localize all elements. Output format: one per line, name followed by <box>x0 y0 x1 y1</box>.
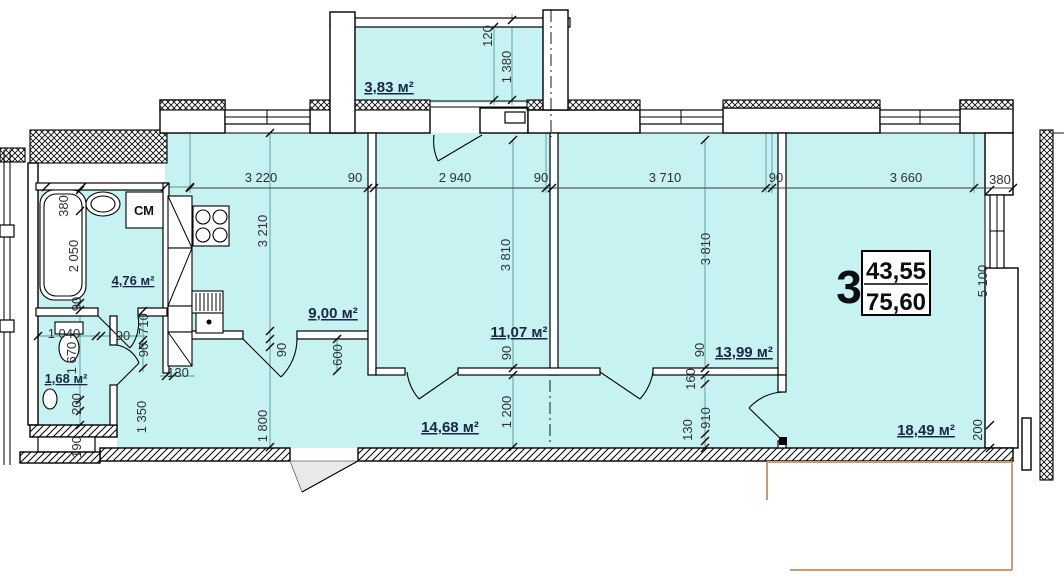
wall-segment <box>310 108 430 133</box>
balcony-pier <box>543 10 568 110</box>
room-area-label-kitchen: 9,00 м² <box>308 305 357 322</box>
washing-machine-label: СМ <box>134 203 154 218</box>
dim-label: 90 <box>534 170 548 185</box>
neighbour-stub <box>0 225 14 237</box>
dim-label: 5 100 <box>975 265 990 298</box>
neighbour-stub <box>0 320 14 332</box>
wall-segment <box>30 130 167 163</box>
unit-number: 3 <box>836 261 862 313</box>
dim-label: 90 <box>348 170 362 185</box>
partition <box>36 308 98 316</box>
dim-label: 160 <box>683 368 698 390</box>
dim-label: 90 <box>274 343 289 357</box>
entrance-door-swing <box>290 461 358 492</box>
wall-segment <box>960 100 1013 109</box>
sink-drain <box>207 320 212 325</box>
dim-label: 1 670 <box>64 342 79 375</box>
dim-label: 90 <box>136 343 151 357</box>
balcony-parapet <box>330 18 570 27</box>
window-living <box>880 110 960 124</box>
partition <box>297 331 368 339</box>
floor-plan-canvas: 3 220 90 2 940 90 3 710 90 3 660 380 120… <box>0 0 1064 579</box>
unit-info-box: 3 43,55 75,60 <box>836 251 930 316</box>
dim-label: 2 940 <box>439 170 472 185</box>
room-area-label-balcony: 3,83 м² <box>364 79 413 96</box>
dim-label: 2 050 <box>66 240 81 273</box>
kitchen-sink <box>192 291 223 333</box>
wall-segment <box>358 448 1013 461</box>
wall-segment <box>723 108 880 133</box>
balcony-pier <box>330 12 355 133</box>
wall-segment <box>160 100 225 110</box>
room-area-label-bedroom1: 11,07 м² <box>491 324 548 341</box>
window-bedroom2 <box>640 110 723 124</box>
dim-label: 3 210 <box>255 215 270 248</box>
wall-segment <box>1022 418 1031 470</box>
dim-label: 380 <box>989 172 1011 187</box>
dim-label: 3 710 <box>649 170 682 185</box>
partition <box>458 368 600 375</box>
dim-label: 1 040 <box>48 326 81 341</box>
dim-label: 380 <box>56 195 71 217</box>
dim-label: 710 <box>136 313 151 335</box>
neighbour-wall <box>1040 130 1053 480</box>
partition <box>110 385 117 425</box>
room-area-label-hall: 14,68 м² <box>421 419 479 436</box>
stove-burner <box>213 210 227 224</box>
dim-label: 3 660 <box>890 170 923 185</box>
partition <box>778 375 786 392</box>
dim-label: 3 810 <box>698 233 713 266</box>
wall-segment <box>28 163 38 425</box>
dim-label: 1 380 <box>499 51 514 84</box>
wall-segment <box>723 100 880 108</box>
dim-label: 190 <box>69 436 84 458</box>
dim-label: 90 <box>116 328 130 343</box>
partition <box>653 368 778 375</box>
bath-sink-bowl <box>91 196 115 212</box>
room-area-label-wc: 1,68 м² <box>45 371 89 386</box>
unit-area-living: 43,55 <box>866 258 926 285</box>
drainer-lines <box>196 293 220 311</box>
floor-plan-page: 3 220 90 2 940 90 3 710 90 3 660 380 120… <box>0 0 1064 579</box>
partition <box>36 183 167 190</box>
dim-label: 910 <box>698 407 713 429</box>
room-area-label-living: 18,49 м² <box>897 422 955 439</box>
unit-area-total: 75,60 <box>866 289 926 316</box>
wall-segment <box>310 100 330 110</box>
stove-burner <box>196 210 210 224</box>
dim-label: 1 800 <box>255 410 270 443</box>
door-pivot <box>779 437 787 445</box>
neighbour-outline <box>4 150 10 465</box>
window-living-side <box>990 195 1004 268</box>
wall-niche <box>38 437 95 452</box>
room-area-label-bedroom2: 13,99 м² <box>715 344 773 361</box>
wall-segment <box>30 425 117 437</box>
dim-label: 130 <box>167 365 189 380</box>
dim-label: 120 <box>480 25 495 47</box>
cabinet-unit <box>168 306 192 332</box>
window-kitchen <box>225 110 310 124</box>
entrance-door <box>290 461 358 492</box>
dim-label: 90 <box>499 346 514 360</box>
room-area-label-bathroom: 4,76 м² <box>112 273 156 288</box>
dim-label: 1 350 <box>134 401 149 434</box>
dim-label: 130 <box>680 419 695 441</box>
wall-segment <box>568 100 640 110</box>
lower-balcony-outline <box>767 462 1012 570</box>
dim-label: 90 <box>692 343 707 357</box>
cabinet-column <box>168 196 192 366</box>
wall-segment <box>528 110 640 133</box>
dim-label: 3 810 <box>498 239 513 272</box>
dim-label: 90 <box>769 170 783 185</box>
partition <box>368 133 376 375</box>
partition <box>550 133 558 375</box>
partition <box>376 368 405 375</box>
wall-segment <box>352 100 430 110</box>
dim-label: 200 <box>69 393 84 415</box>
stove-burner <box>213 228 227 242</box>
dim-label: 600 <box>330 344 345 366</box>
wall-segment <box>100 448 290 461</box>
dim-label: 1 200 <box>499 396 514 429</box>
stove <box>193 206 229 246</box>
wall-segment <box>20 452 100 463</box>
stove-burner <box>196 228 210 242</box>
wc-sink <box>43 389 57 409</box>
dim-label: 200 <box>970 419 985 441</box>
balcony-door-frame <box>505 112 525 123</box>
dim-label: 90 <box>69 297 84 311</box>
dim-label: 3 220 <box>245 170 278 185</box>
